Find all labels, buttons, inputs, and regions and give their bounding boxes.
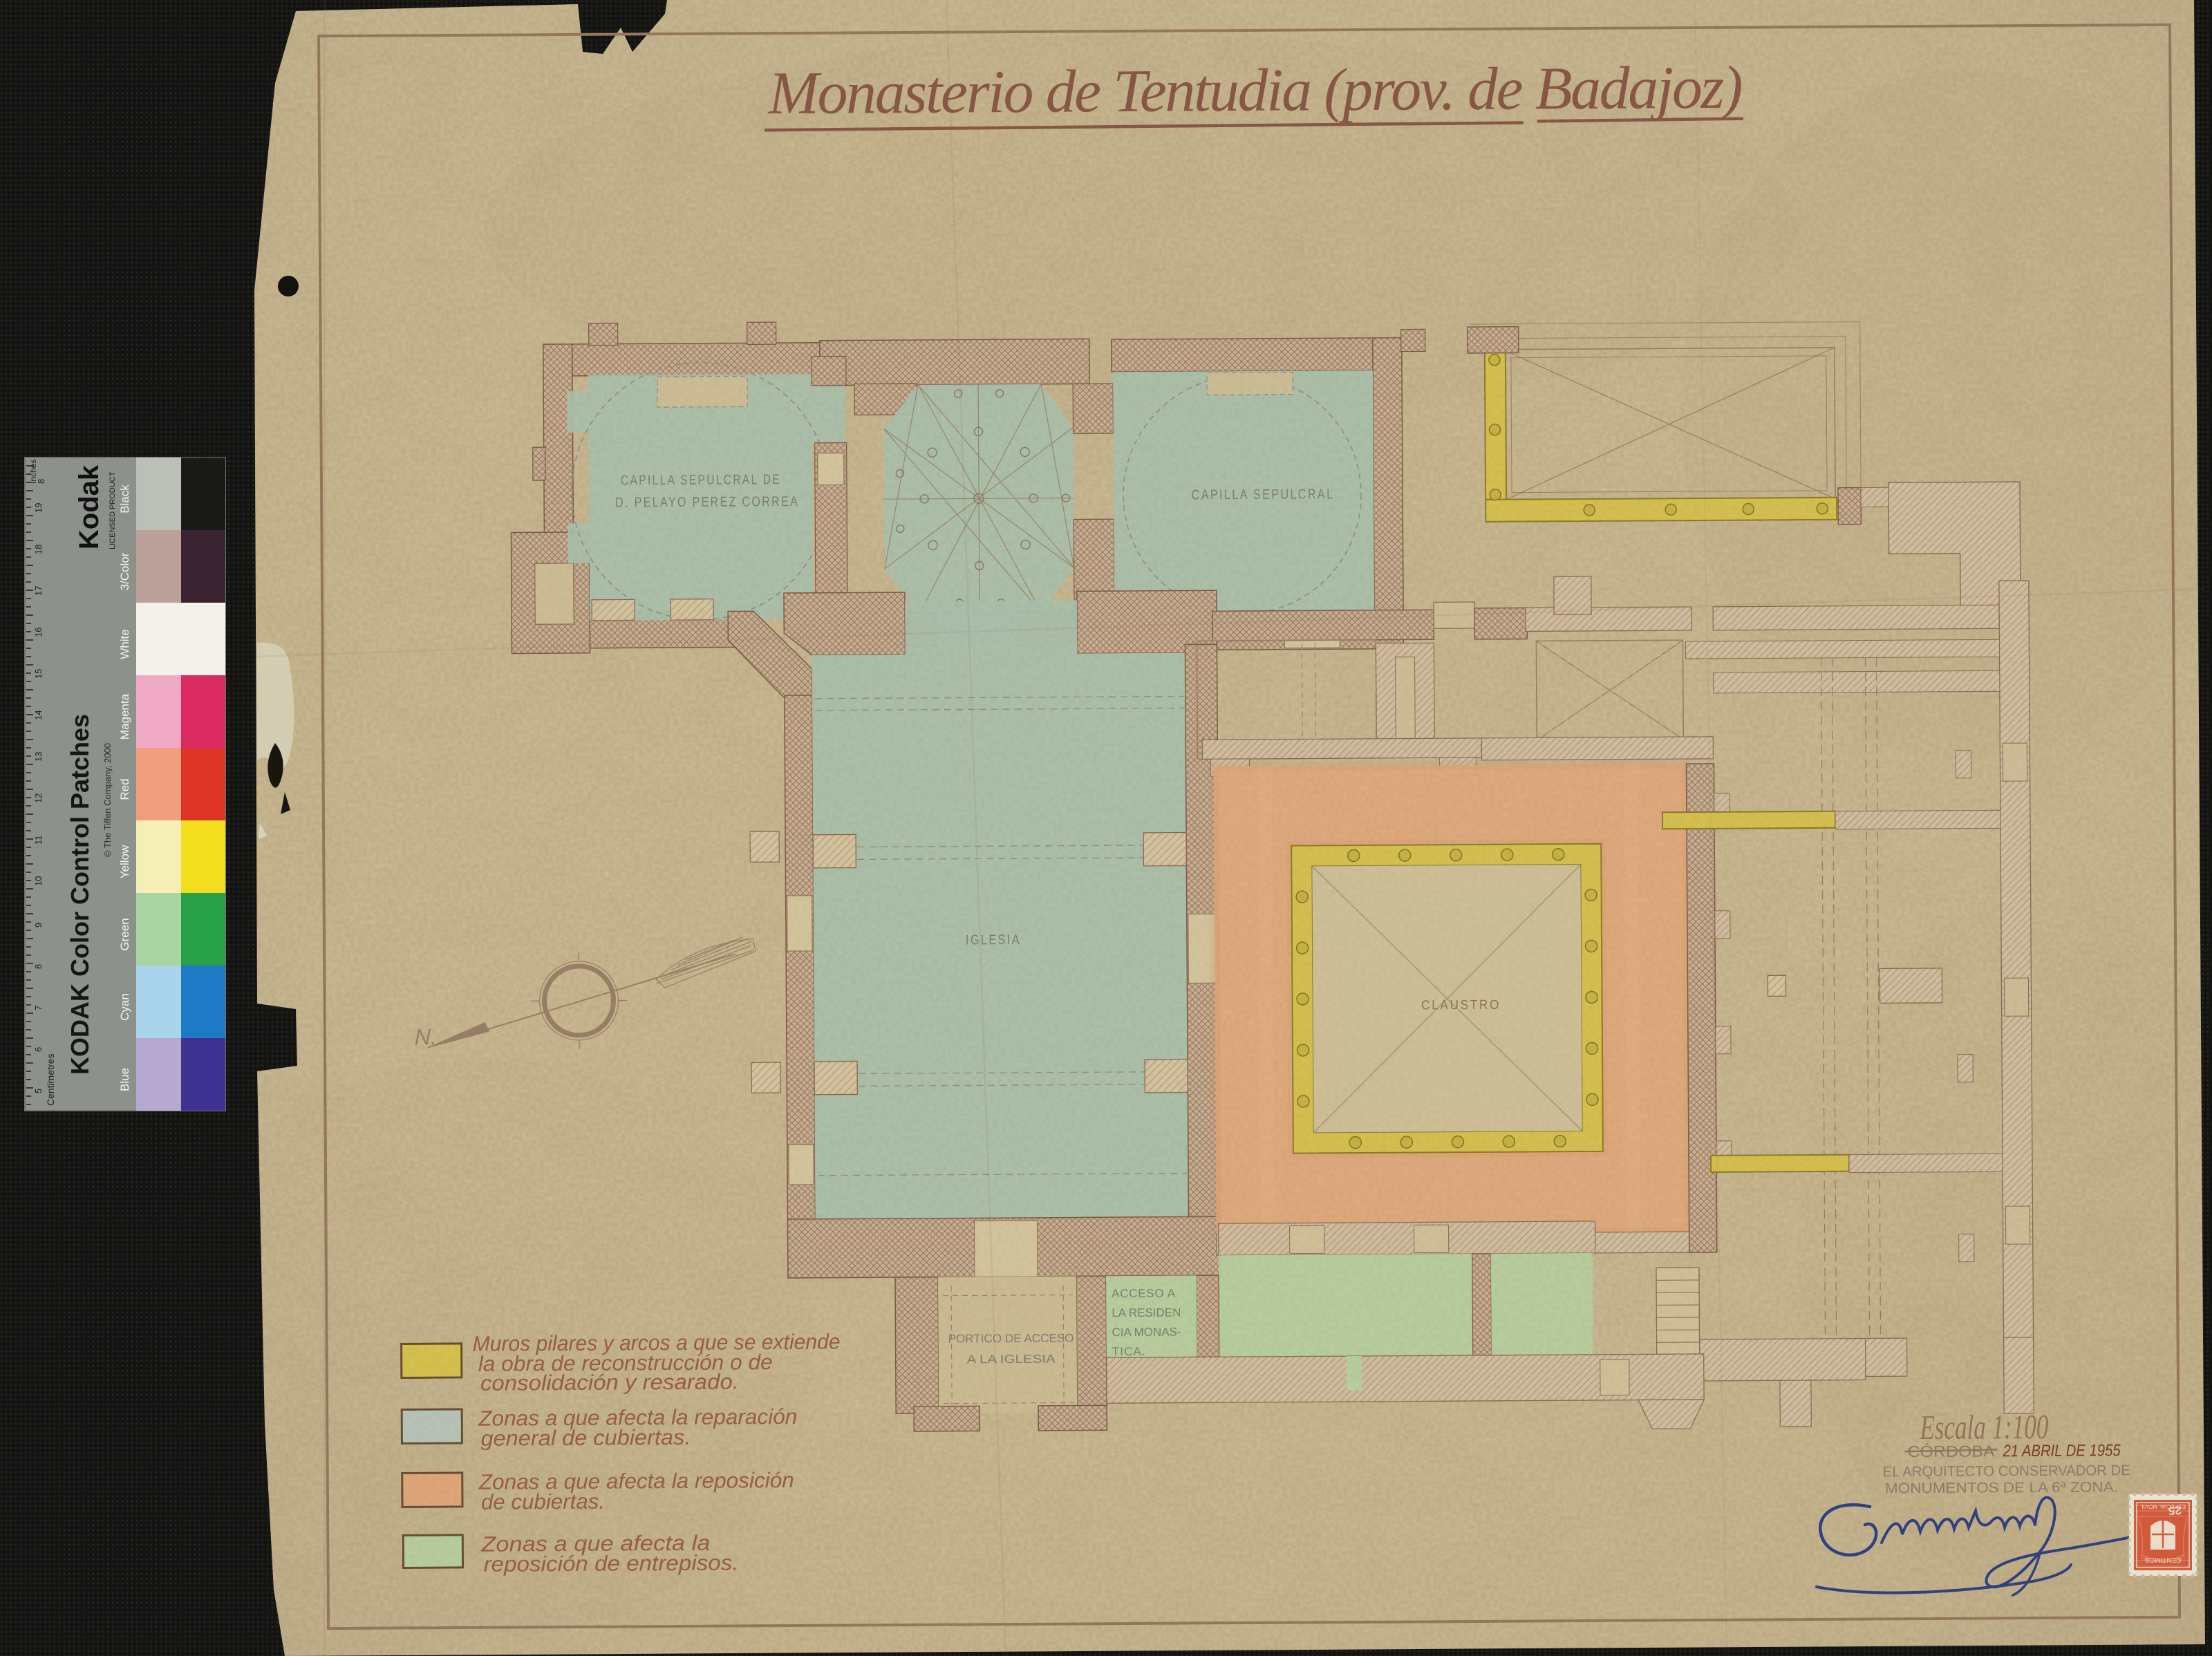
svg-text:16: 16 xyxy=(33,628,44,637)
svg-text:8: 8 xyxy=(33,964,44,969)
svg-text:15: 15 xyxy=(33,669,44,679)
svg-text:KODAK Color Control Patches: KODAK Color Control Patches xyxy=(66,714,94,1075)
svg-text:12: 12 xyxy=(33,793,44,803)
svg-text:9: 9 xyxy=(33,923,44,928)
svg-text:19: 19 xyxy=(33,503,44,513)
svg-text:Red: Red xyxy=(118,778,131,800)
svg-text:White: White xyxy=(118,629,131,659)
svg-text:Green: Green xyxy=(118,918,131,950)
svg-text:17: 17 xyxy=(33,586,44,596)
svg-text:14: 14 xyxy=(33,711,44,720)
svg-text:Magenta: Magenta xyxy=(118,693,131,740)
svg-text:LICENSED PRODUCT: LICENSED PRODUCT xyxy=(109,471,117,549)
svg-text:6: 6 xyxy=(33,1047,44,1052)
svg-text:Kodak: Kodak xyxy=(74,464,104,549)
svg-text:3/Color: 3/Color xyxy=(118,552,131,590)
svg-text:11: 11 xyxy=(33,836,44,845)
svg-text:Centimetres: Centimetres xyxy=(45,1054,56,1106)
svg-text:Black: Black xyxy=(118,484,131,514)
svg-text:Blue: Blue xyxy=(118,1068,131,1091)
svg-text:ESPECIAL MOVIL: ESPECIAL MOVIL xyxy=(2139,1503,2186,1509)
svg-text:© The Tiffen Company, 2000: © The Tiffen Company, 2000 xyxy=(102,743,113,857)
svg-text:13: 13 xyxy=(33,752,44,762)
svg-text:18: 18 xyxy=(33,545,44,554)
svg-text:5: 5 xyxy=(33,1089,44,1093)
svg-text:7: 7 xyxy=(33,1006,44,1010)
svg-text:Inches: Inches xyxy=(28,460,38,484)
svg-text:Cyan: Cyan xyxy=(118,993,131,1021)
svg-text:Yellow: Yellow xyxy=(118,845,131,878)
svg-text:10: 10 xyxy=(33,876,44,886)
